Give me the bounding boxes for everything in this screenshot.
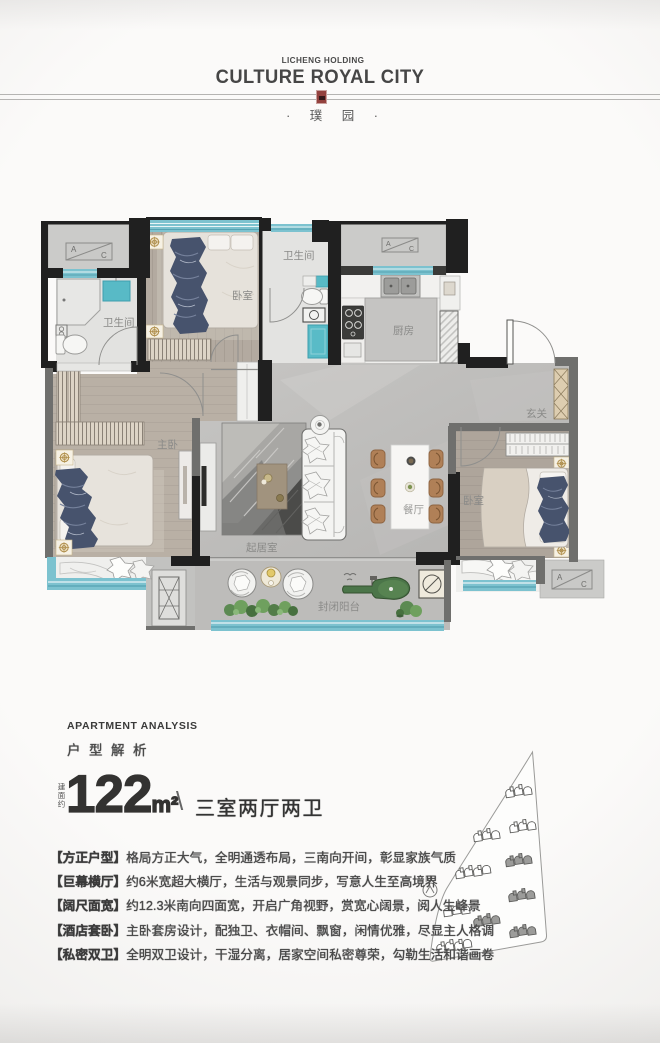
svg-text:C: C [101, 251, 107, 260]
svg-text:A: A [386, 241, 391, 248]
svg-text:卫生间: 卫生间 [103, 316, 135, 329]
svg-text:厨房: 厨房 [393, 324, 414, 337]
svg-text:C: C [581, 580, 587, 589]
svg-text:C: C [409, 246, 414, 253]
svg-text:玄关: 玄关 [526, 407, 547, 420]
svg-text:卫生间: 卫生间 [283, 249, 315, 262]
svg-text:封闭阳台: 封闭阳台 [318, 600, 360, 613]
svg-text:主卧: 主卧 [157, 438, 178, 451]
svg-text:起居室: 起居室 [246, 541, 278, 554]
svg-text:餐厅: 餐厅 [403, 503, 424, 516]
svg-text:A: A [557, 573, 563, 582]
svg-text:A: A [71, 245, 77, 254]
svg-text:卧室: 卧室 [232, 289, 253, 302]
svg-text:卧室: 卧室 [463, 494, 484, 507]
